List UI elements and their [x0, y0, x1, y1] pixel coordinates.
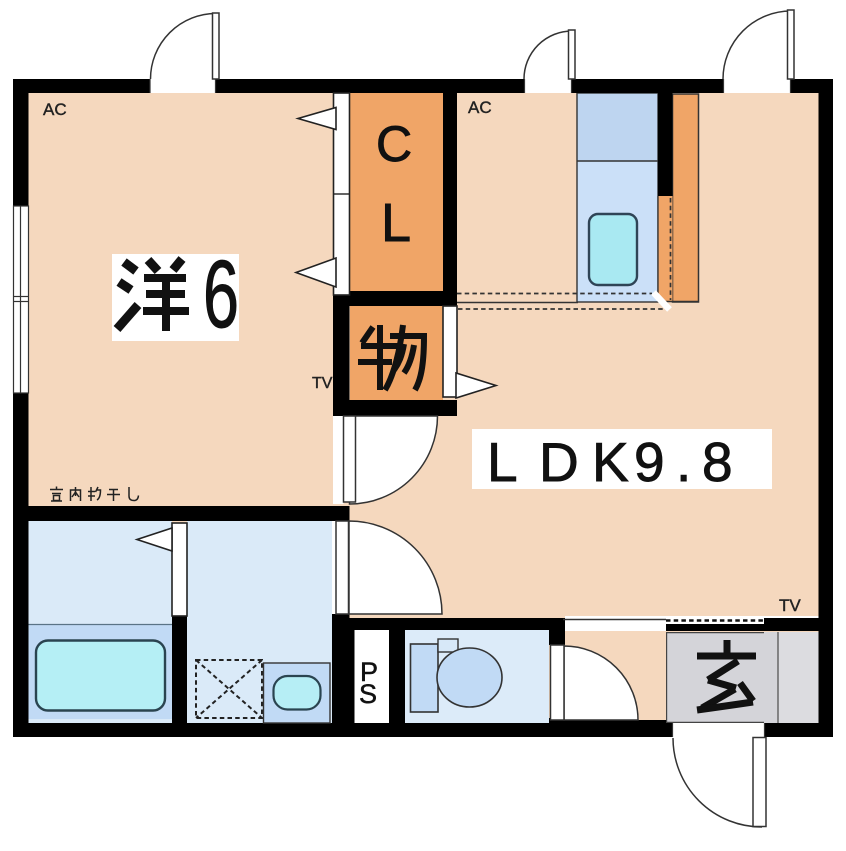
svg-text:L: L: [381, 193, 411, 253]
svg-text:S: S: [359, 679, 377, 709]
svg-text:L: L: [487, 431, 518, 493]
svg-text:9: 9: [634, 431, 665, 493]
svg-text:TV: TV: [779, 596, 801, 615]
svg-text:K: K: [592, 431, 629, 493]
svg-text:TV: TV: [312, 375, 333, 392]
svg-text:AC: AC: [468, 98, 492, 117]
svg-text:.: .: [676, 431, 691, 493]
svg-text:8: 8: [702, 431, 733, 493]
svg-text:6: 6: [203, 241, 239, 348]
svg-text:C: C: [376, 116, 412, 172]
svg-text:AC: AC: [43, 100, 67, 119]
svg-text:D: D: [539, 431, 579, 493]
